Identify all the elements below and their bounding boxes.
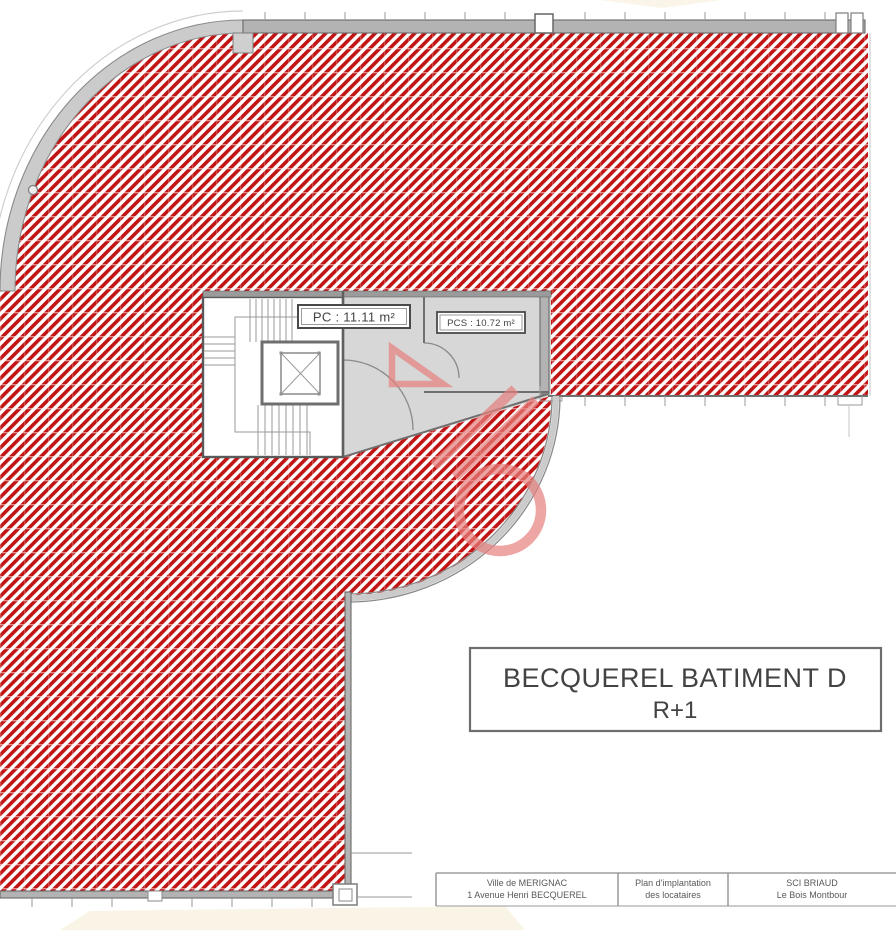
facade-end-post bbox=[851, 13, 863, 33]
scan-tint-top bbox=[600, 0, 722, 8]
street-label: 1 Avenue Henri BECQUEREL bbox=[467, 890, 586, 900]
pcs-area-label: PCS : 10.72 m² bbox=[447, 318, 515, 329]
title-block-cell-owner: SCI BRIAUD Le Bois Montbour bbox=[777, 878, 848, 900]
elevator-shaft bbox=[262, 342, 338, 404]
title-block-cell-plan-type: Plan d'implantation des locataires bbox=[635, 878, 711, 900]
plan-type-label-2: des locataires bbox=[645, 890, 701, 900]
pcs-right-wall bbox=[540, 291, 549, 394]
floor-plan-drawing: PC : 11.11 m² PCS : 10.72 m² BECQUEREL B… bbox=[0, 0, 896, 930]
title-block: Ville de MERIGNAC 1 Avenue Henri BECQUER… bbox=[436, 873, 896, 906]
drawing-title-box: BECQUEREL BATIMENT D R+1 bbox=[470, 648, 881, 731]
floor-title: R+1 bbox=[653, 697, 698, 724]
wall-notch bbox=[838, 396, 862, 405]
owner-label-2: Le Bois Montbour bbox=[777, 890, 848, 900]
plan-type-label: Plan d'implantation bbox=[635, 878, 711, 888]
elevator-shaft-cross-icon bbox=[280, 352, 321, 396]
room-label-pc: PC : 11.11 m² bbox=[296, 305, 410, 328]
facade-post bbox=[535, 14, 553, 33]
wing-right-wall bbox=[345, 592, 351, 898]
owner-label: SCI BRIAUD bbox=[786, 878, 838, 888]
facade-step bbox=[233, 33, 253, 53]
pc-area-label: PC : 11.11 m² bbox=[313, 310, 396, 325]
corner-post bbox=[333, 884, 357, 905]
floor-plan-page: PC : 11.11 m² PCS : 10.72 m² BECQUEREL B… bbox=[0, 0, 896, 930]
room-label-pcs: PCS : 10.72 m² bbox=[437, 312, 525, 333]
wing-bottom-wall bbox=[0, 891, 351, 898]
title-block-cell-address: Ville de MERIGNAC 1 Avenue Henri BECQUER… bbox=[467, 878, 586, 900]
survey-ticks-bottom bbox=[32, 898, 312, 907]
core-top-wall bbox=[203, 291, 551, 297]
survey-ticks-right-wing bbox=[585, 396, 825, 406]
scan-tint-bottom-left bbox=[60, 906, 525, 930]
facade-column-node bbox=[29, 186, 38, 195]
wall-door-notch bbox=[148, 891, 162, 901]
building-title: BECQUEREL BATIMENT D bbox=[503, 663, 847, 693]
facade-end-post bbox=[836, 13, 848, 33]
city-label: Ville de MERIGNAC bbox=[487, 878, 568, 888]
